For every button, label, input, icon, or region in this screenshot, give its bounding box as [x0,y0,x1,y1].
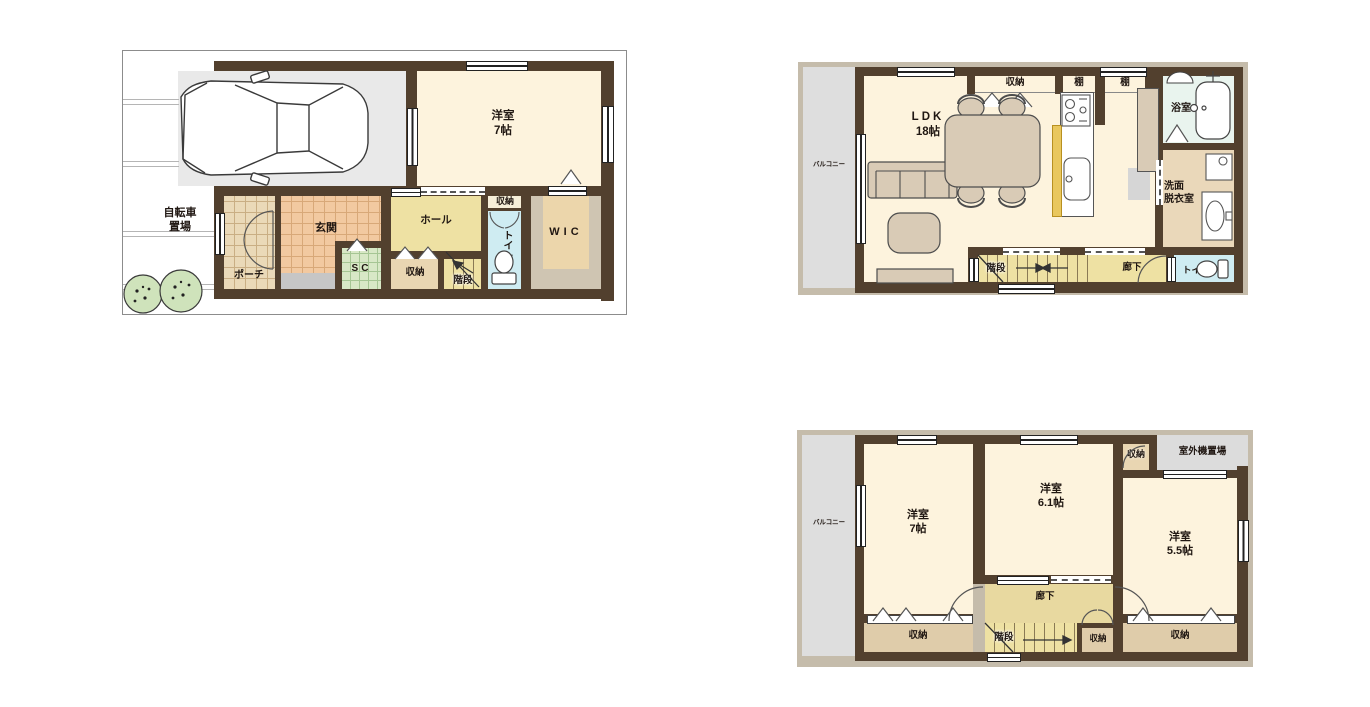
fridge-space [1128,168,1150,200]
wall [381,196,391,289]
stairs-label-2f: 階段 [978,263,1014,275]
wall [335,241,342,289]
wall [1082,623,1113,628]
window [391,188,421,197]
window [897,67,955,77]
window [1127,615,1235,624]
closet-top-label: 収納 [1118,449,1154,461]
room7-label-3f: 洋室 7帖 [883,508,953,537]
wall [967,67,975,94]
outdoor-unit-label: 室外機置場 [1157,446,1248,458]
opening-dashed [1156,160,1163,205]
balcony-floor-2f [803,67,855,288]
balcony-floor-3f [802,435,855,656]
wall [335,241,381,248]
room-name: 洗面 [1164,181,1184,192]
room7-label-1f: 洋室 7帖 [453,109,553,139]
room-size: 7帖 [494,125,512,137]
room-size: 5.5帖 [1167,545,1193,557]
window [548,186,587,196]
window [856,485,866,547]
opening-dashed [1085,248,1145,255]
shelf1-label: 棚 [1069,77,1089,89]
room-name: LDK [912,111,945,123]
window [1100,67,1147,77]
room-name: 洋室 [1040,483,1062,495]
wall [488,208,521,211]
ldk-label: LDK 18帖 [893,110,963,140]
window [1020,435,1078,445]
closet-left-label: 収納 [898,630,938,642]
stairs-label-1f: 階段 [443,275,483,287]
window [867,615,973,624]
wall [1155,143,1243,150]
window [856,134,866,244]
wall [391,251,481,259]
driveway-garage-floor [178,71,417,186]
room-size: 7帖 [909,523,926,535]
wall [1234,67,1243,293]
room-size: 6.1帖 [1038,497,1064,509]
wall [214,61,614,71]
room-name: 洋室 [492,110,515,122]
genkan-step [281,273,341,289]
bicycle-line1: 自転車 [164,207,197,219]
corridor-label-3f: 廊下 [1025,591,1065,603]
window [1238,520,1249,562]
storage-label-1f: 収納 [395,267,435,279]
kitchen-counter [1060,92,1094,217]
bath-label: 浴室 [1166,102,1196,115]
driveway-line [123,161,179,167]
window [407,108,418,166]
wall [855,435,864,661]
washroom-label: 洗面 脱衣室 [1164,180,1206,206]
room-name: 洋室 [907,509,929,521]
wall [601,61,614,301]
window [466,61,528,71]
room-name: 洋室 [1169,531,1191,543]
closet-mid-label: 収納 [1080,633,1116,644]
wall [214,289,614,299]
floor1-plan: 自転車 置場 洋室 7帖 ポーチ 玄関 SC ホール 収納 階段 収納 トイレ … [122,50,627,315]
opening-dashed [421,187,485,195]
stairs-label-3f: 階段 [985,632,1023,644]
floor2-plan: バルコニー LDK 18帖 収納 棚 棚 浴室 洗面 脱衣室 階段 廊下 トイレ [798,62,1248,295]
corridor-floor-3f [985,584,1113,623]
hall-label: ホール [406,214,466,228]
room-name: 脱衣室 [1164,194,1194,205]
porch-label: ポーチ [219,269,279,282]
wall [973,444,985,584]
room61-label: 洋室 6.1帖 [1016,482,1086,511]
window [897,435,937,445]
wic-label: WIC [536,225,596,239]
room-size: 18帖 [916,126,940,138]
floorplan-canvas: 自転車 置場 洋室 7帖 ポーチ 玄関 SC ホール 収納 階段 収納 トイレ … [0,0,1370,707]
floor3-plan: バルコニー 洋室 7帖 洋室 6.1帖 洋室 5.5帖 収納 室外機置場 廊下 … [797,430,1253,667]
driveway-line [123,284,214,290]
kitchen-counter-edge [1052,125,1062,217]
wall [1055,67,1063,94]
driveway-line [123,99,179,105]
opening-dashed [1051,576,1111,583]
window [997,576,1049,585]
balcony-label-3f: バルコニー [806,518,852,526]
wall [855,652,1248,661]
window [1167,257,1176,282]
toilet-label-1f: トイレ [495,219,513,271]
window [987,653,1021,662]
room55-label: 洋室 5.5帖 [1145,530,1215,559]
window [602,106,614,163]
window [1163,470,1227,479]
closet-right-label: 収納 [1160,630,1200,642]
sc-label: SC [345,262,378,275]
shelf2-label: 棚 [1115,77,1135,89]
closet-label-2f: 収納 [995,77,1035,89]
bicycle-line2: 置場 [169,221,191,233]
opening-dashed [1003,248,1060,255]
balcony-label-2f: バルコニー [806,160,852,168]
genkan-label: 玄関 [296,221,356,235]
bicycle-area-label: 自転車 置場 [141,206,219,235]
closet-label-1f: 収納 [487,196,523,208]
toilet-label-2f: トイレ [1176,265,1216,277]
corridor-label-2f: 廊下 [1114,262,1150,274]
tree-icon [124,270,202,313]
window [998,284,1055,294]
wall [1237,466,1248,661]
